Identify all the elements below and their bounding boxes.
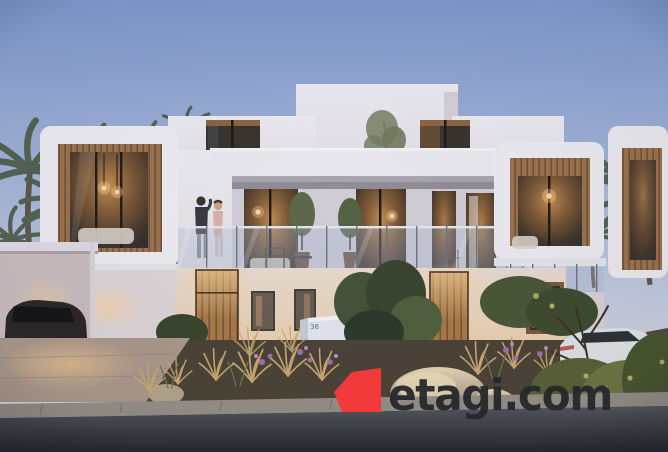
architectural-render-photo: 36 37 xyxy=(0,0,668,452)
etagi-brand-text: etagi.com xyxy=(388,370,612,421)
